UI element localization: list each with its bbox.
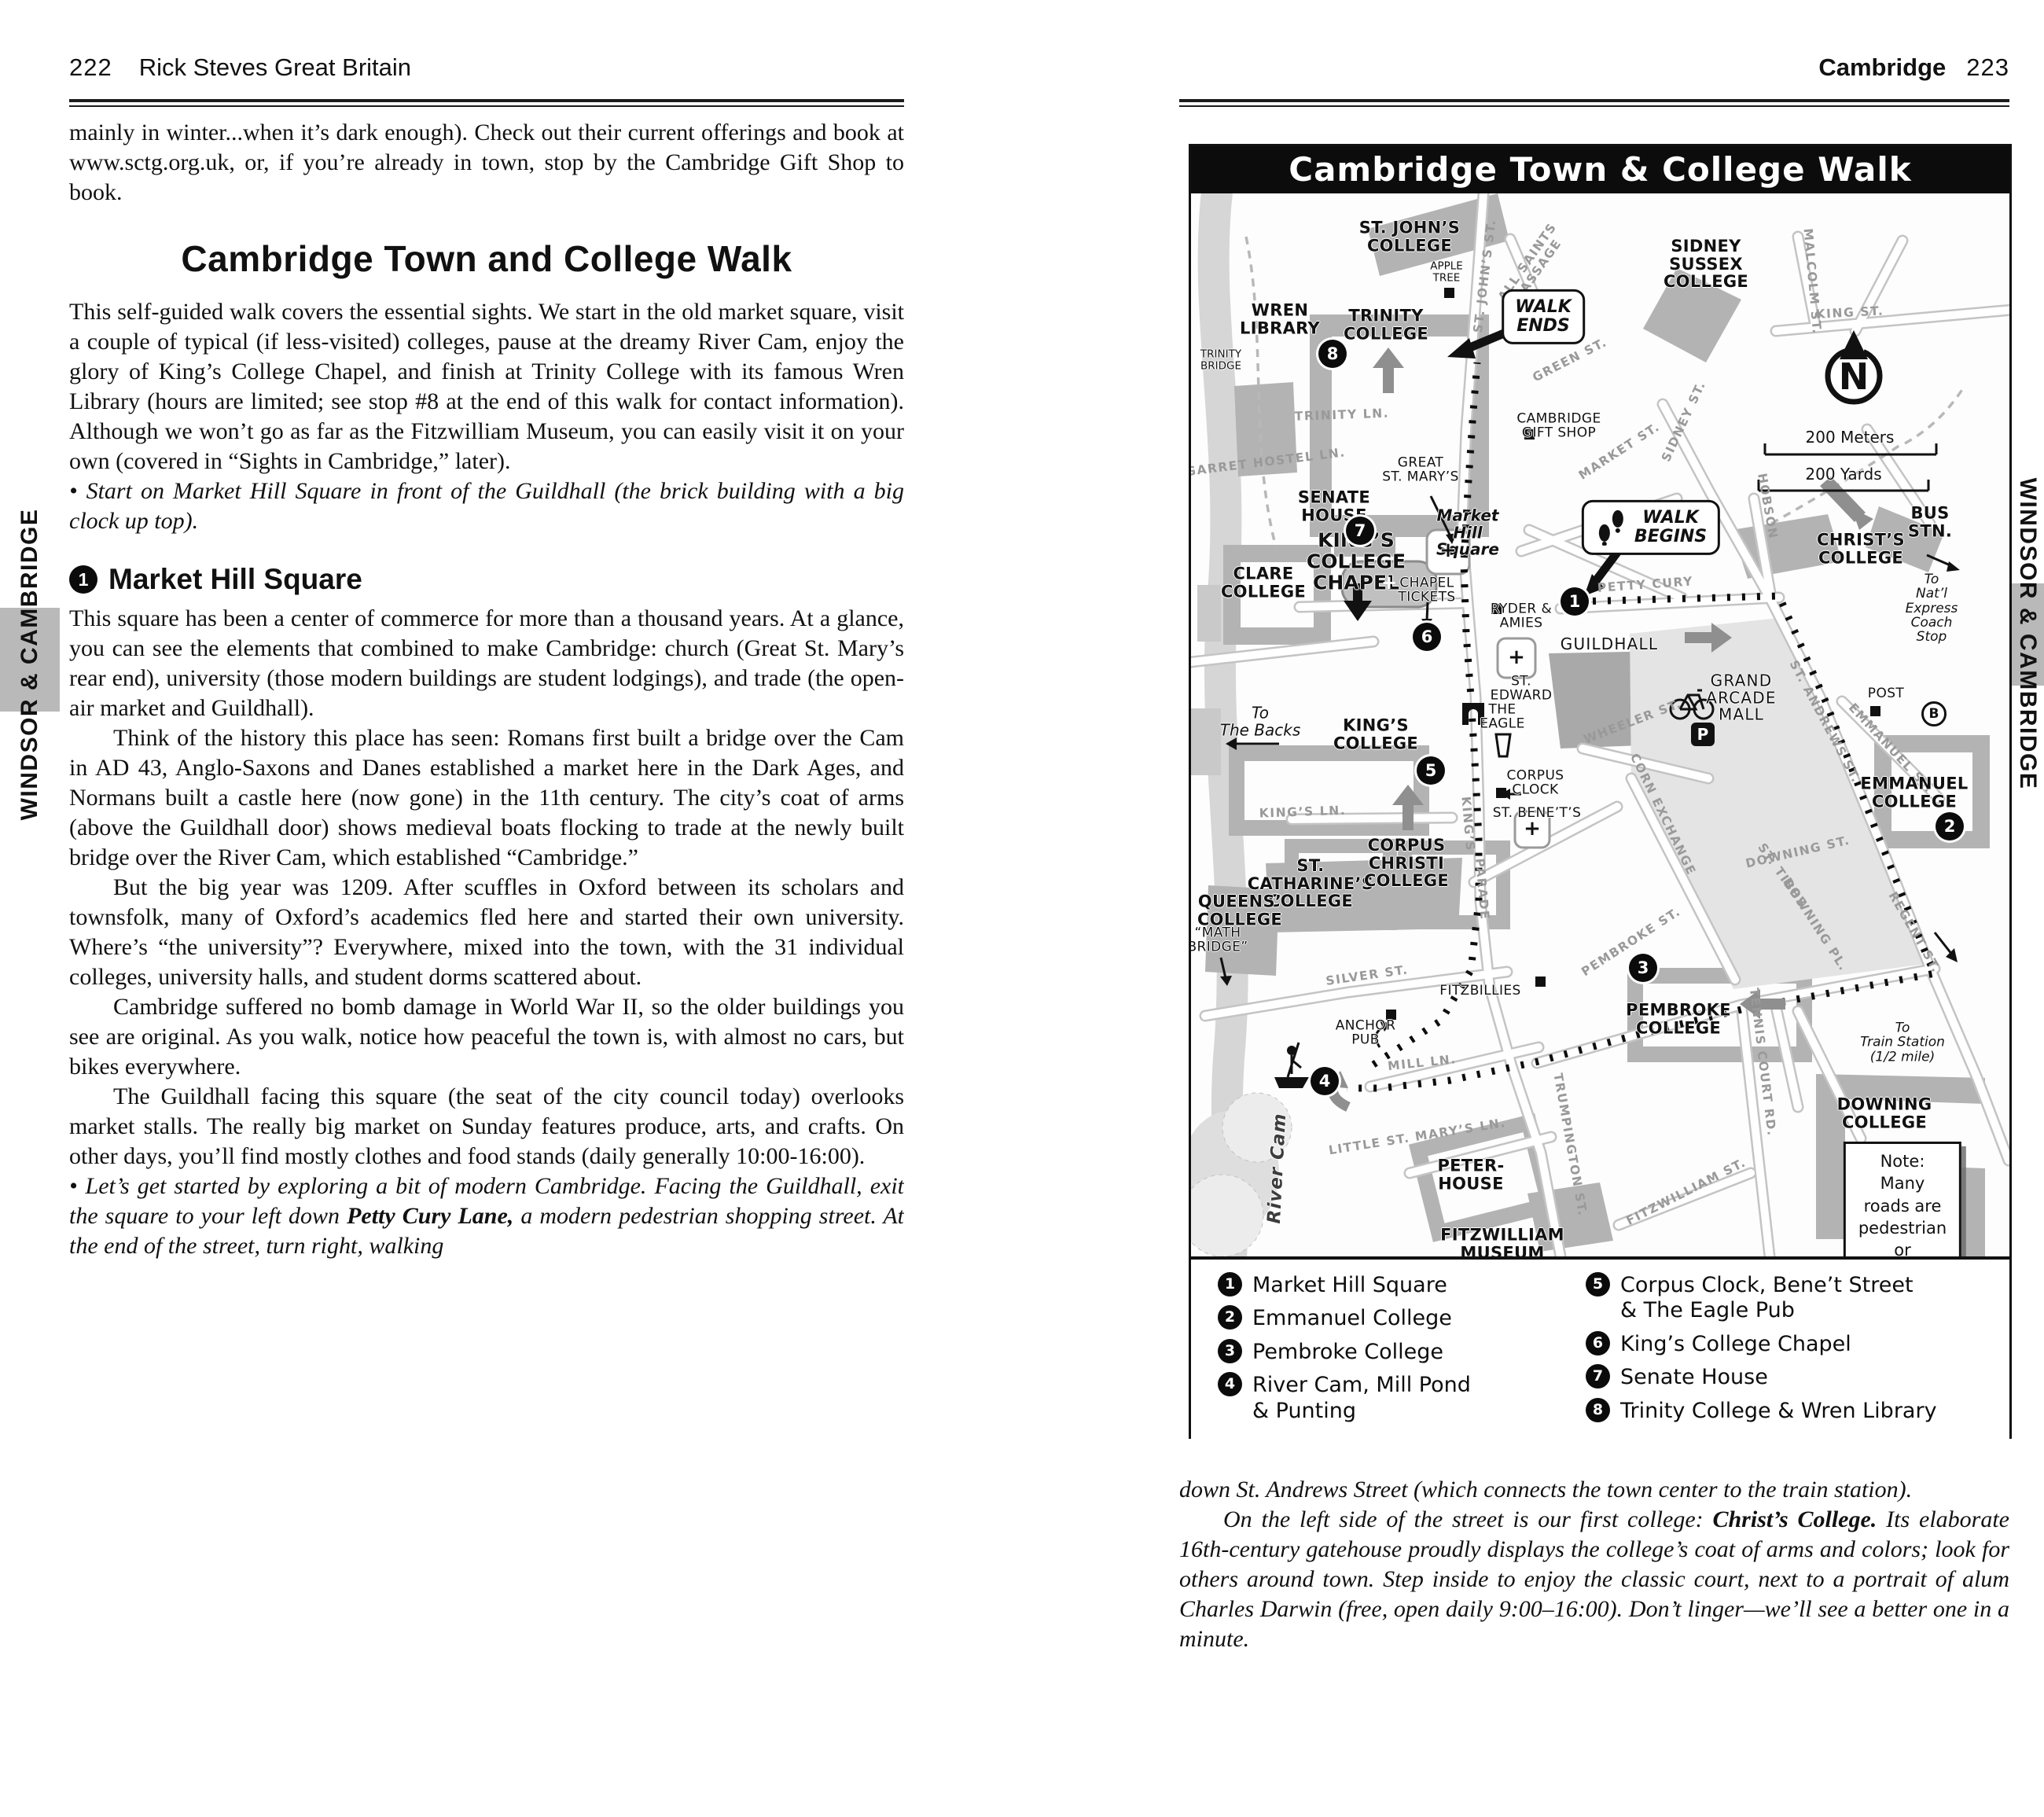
map-stop-8: 8 <box>1318 340 1347 368</box>
map-note: Note: Many roads are pedestrian or restr… <box>1844 1142 1961 1256</box>
map-stop-5: 5 <box>1417 756 1445 785</box>
map-label: N <box>1839 358 1869 397</box>
continuation-paragraph-2: On the left side of the street is our fi… <box>1179 1505 2009 1654</box>
map-label: GREAT ST. MARY’S <box>1382 456 1459 485</box>
legend-number-badge: 8 <box>1586 1398 1610 1422</box>
legend-item: 7Senate House <box>1586 1364 1994 1390</box>
map-label: CHRIST’S COLLEGE <box>1817 531 1905 566</box>
legend-column-left: 1Market Hill Square2Emmanuel College3Pem… <box>1218 1272 1586 1447</box>
map-label: + <box>1508 646 1525 668</box>
map-label: 200 Meters <box>1806 429 1895 447</box>
walk-ends-callout: WALK ENDS <box>1502 289 1585 344</box>
map-label: TRINITY BRIDGE <box>1200 348 1241 371</box>
stop1-paragraph-2: Think of the history this place has seen… <box>69 723 904 873</box>
map-label: 200 Yards <box>1805 466 1881 484</box>
walk-begins-label: WALK BEGINS <box>1634 509 1707 546</box>
map-label: POST <box>1868 686 1904 701</box>
legend-item: 2Emmanuel College <box>1218 1305 1586 1331</box>
map-label: GRAND ARCADE MALL <box>1706 673 1776 724</box>
legend-item: 5Corpus Clock, Bene’t Street & The Eagle… <box>1586 1272 1994 1324</box>
walk-section-title: Cambridge Town and College Walk <box>69 239 904 278</box>
map-panel: Cambridge Town & College Walk <box>1189 144 2012 1439</box>
map-label: TRINITY COLLEGE <box>1344 307 1428 342</box>
legend-number-badge: 4 <box>1218 1372 1242 1396</box>
map-label: B <box>1921 701 1947 726</box>
map-label: FITZBILLIES <box>1439 984 1520 998</box>
fitzbillies-marker <box>1535 977 1546 987</box>
right-header-rule <box>1179 99 2009 107</box>
stop1-paragraph-3: But the big year was 1209. After scuffle… <box>69 873 904 992</box>
stop1-paragraph-4: Cambridge suffered no bomb damage in Wor… <box>69 992 904 1082</box>
map-label: KING’S LN. <box>1259 804 1346 821</box>
legend-label: Trinity College & Wren Library <box>1620 1398 1937 1424</box>
map-canvas: WALK BEGINS WALK ENDS Note: Many roads a… <box>1191 193 2009 1256</box>
lets-go-direction-note: • Let’s get started by exploring a bit o… <box>69 1171 904 1261</box>
map-label: “MATH BRIDGE” <box>1191 926 1248 955</box>
map-label: APPLE TREE <box>1430 260 1463 283</box>
map-label: ST. EDWARD <box>1491 675 1553 704</box>
walk-intro-paragraph: This self-guided walk covers the essenti… <box>69 297 904 476</box>
legend-item: 3Pembroke College <box>1218 1339 1586 1365</box>
continuation-paragraph-1: down St. Andrews Street (which connects … <box>1179 1475 2009 1505</box>
stop1-number-badge: 1 <box>69 565 97 594</box>
map-label: WREN LIBRARY <box>1240 301 1320 337</box>
left-page-number: 222 <box>69 53 112 81</box>
chapter-name: Cambridge <box>1818 53 1946 81</box>
map-stop-4: 4 <box>1311 1067 1339 1095</box>
legend-number-badge: 5 <box>1586 1272 1610 1297</box>
stop1-heading: 1 Market Hill Square <box>69 563 904 596</box>
map-label: To Train Station (1/2 mile) <box>1860 1021 1945 1064</box>
map-label: ST. JOHN’S COLLEGE <box>1359 219 1460 254</box>
right-sidebar-tab: WINDSOR & CAMBRIDGE <box>2014 478 2041 790</box>
bold-run: Petty Cury Lane, <box>347 1203 513 1229</box>
walk-ends-label: WALK ENDS <box>1515 298 1572 336</box>
corpus-clock-marker <box>1496 788 1506 798</box>
right-text-column: down St. Andrews Street (which connects … <box>1179 1475 2009 1805</box>
map-stop-2: 2 <box>1936 812 1964 840</box>
map-label: GUILDHALL <box>1561 636 1658 653</box>
stop1-title: Market Hill Square <box>108 563 362 596</box>
map-label: CHAPEL TICKETS <box>1398 576 1455 605</box>
map-label: BUS STN. <box>1908 504 1952 539</box>
map-label: To The Backs <box>1220 704 1301 738</box>
legend-number-badge: 3 <box>1218 1339 1242 1363</box>
bold-run: Christ’s College. <box>1712 1506 1877 1532</box>
map-label: KING’S COLLEGE <box>1333 716 1418 752</box>
map-label: + <box>1439 539 1457 561</box>
map-label: THE EAGLE <box>1480 703 1524 732</box>
map-label: + <box>1524 818 1541 840</box>
left-header-rule <box>69 99 904 107</box>
map-label: DOWNING COLLEGE <box>1837 1095 1932 1131</box>
map-label: CORPUS CHRISTI COLLEGE <box>1364 837 1449 890</box>
right-running-head: Cambridge223 <box>1179 53 2009 82</box>
legend-label: Market Hill Square <box>1252 1272 1447 1298</box>
stop1-paragraph-1: This square has been a center of commerc… <box>69 604 904 723</box>
legend-item: 4River Cam, Mill Pond & Punting <box>1218 1372 1586 1424</box>
right-page-number: 223 <box>1966 53 2009 81</box>
legend-item: 6King’s College Chapel <box>1586 1331 1994 1357</box>
walk-begins-callout: WALK BEGINS <box>1582 500 1720 555</box>
footprints-icon <box>1595 509 1627 546</box>
left-sidebar-tab: WINDSOR & CAMBRIDGE <box>17 509 43 821</box>
map-label: CLARE COLLEGE <box>1221 565 1306 600</box>
map-label: QUEENS’ COLLEGE <box>1197 892 1282 928</box>
map-stop-1: 1 <box>1561 587 1589 616</box>
map-stop-3: 3 <box>1629 954 1657 982</box>
legend-number-badge: 2 <box>1218 1305 1242 1330</box>
map-title: Cambridge Town & College Walk <box>1191 146 2009 193</box>
legend-label: Corpus Clock, Bene’t Street & The Eagle … <box>1620 1272 1913 1324</box>
map-label: PETER- HOUSE <box>1437 1157 1504 1192</box>
legend-column-right: 5Corpus Clock, Bene’t Street & The Eagle… <box>1586 1272 1994 1447</box>
map-label: PEMBROKE COLLEGE <box>1626 1001 1731 1036</box>
intro-paragraph: mainly in winter...when it’s dark enough… <box>69 118 904 208</box>
left-text-column: mainly in winter...when it’s dark enough… <box>69 118 904 1804</box>
book-title: Rick Steves Great Britain <box>139 53 411 81</box>
map-label: EMMANUEL COLLEGE <box>1860 774 1968 810</box>
legend-number-badge: 7 <box>1586 1364 1610 1388</box>
map-label: CORPUS CLOCK <box>1507 769 1564 798</box>
map-label: FITZWILLIAM MUSEUM <box>1440 1226 1564 1256</box>
legend-label: King’s College Chapel <box>1620 1331 1851 1357</box>
left-running-head: 222Rick Steves Great Britain <box>69 53 411 82</box>
map-label: ANCHOR PUB <box>1336 1019 1396 1048</box>
map-label: CAMBRIDGE GIFT SHOP <box>1516 412 1601 441</box>
legend-number-badge: 6 <box>1586 1331 1610 1355</box>
legend-label: River Cam, Mill Pond & Punting <box>1252 1372 1471 1424</box>
legend-number-badge: 1 <box>1218 1272 1242 1297</box>
map-label: SIDNEY SUSSEX COLLEGE <box>1664 237 1748 291</box>
map-legend: 1Market Hill Square2Emmanuel College3Pem… <box>1191 1256 2009 1447</box>
text-run: On the left side of the street is our fi… <box>1223 1506 1712 1532</box>
legend-item: 1Market Hill Square <box>1218 1272 1586 1298</box>
legend-label: Pembroke College <box>1252 1339 1443 1365</box>
pint-glass-icon <box>1496 734 1510 756</box>
legend-label: Senate House <box>1620 1364 1768 1390</box>
legend-item: 8Trinity College & Wren Library <box>1586 1398 1994 1424</box>
legend-label: Emmanuel College <box>1252 1305 1452 1331</box>
start-direction-note: • Start on Market Hill Square in front o… <box>69 476 904 536</box>
map-label: RYDER & AMIES <box>1491 602 1552 631</box>
map-stop-6: 6 <box>1413 623 1441 651</box>
apple-tree-marker <box>1444 288 1454 298</box>
map-label: P <box>1691 723 1715 746</box>
stop1-paragraph-5: The Guildhall facing this square (the se… <box>69 1082 904 1171</box>
map-label: + <box>1381 573 1397 594</box>
post-office-marker <box>1870 706 1880 716</box>
map-stop-7: 7 <box>1346 517 1374 545</box>
map-label: To Nat’l Express Coach Stop <box>1906 572 1958 645</box>
punter-icon <box>1274 1043 1309 1088</box>
